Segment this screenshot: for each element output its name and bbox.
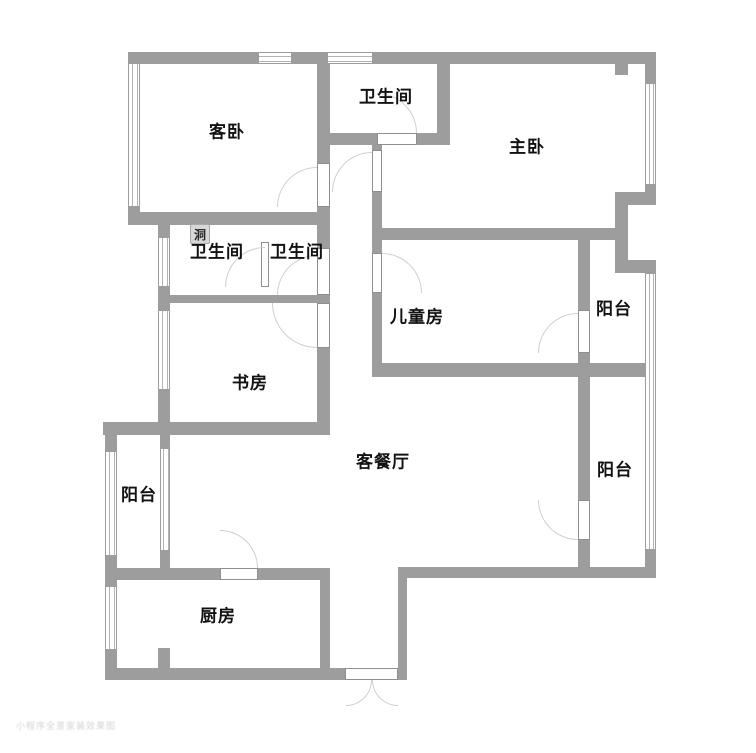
window [105, 451, 117, 556]
room-label-master-bedroom: 主卧 [509, 133, 545, 158]
door-leaf [377, 133, 417, 145]
wall [158, 287, 170, 310]
room-label-balcony-right-lower: 阳台 [597, 456, 633, 481]
door-swing-arc [272, 303, 317, 348]
wall [645, 64, 656, 83]
door-leaf [317, 303, 330, 348]
door-swing-arc [382, 253, 422, 293]
wall [158, 648, 170, 668]
room-label-living-dining: 客餐厅 [356, 448, 410, 473]
hole-annotation: 洞 [190, 224, 210, 244]
watermark: 小程序全景家装效果图 [16, 719, 116, 732]
door-swing-arc [220, 530, 258, 568]
window [105, 586, 117, 650]
wall [398, 567, 407, 680]
room-label-balcony-left: 阳台 [121, 481, 157, 506]
wall [317, 64, 330, 163]
wall [578, 240, 590, 310]
door-swing-arc [538, 500, 578, 540]
wall [320, 568, 330, 668]
wall [128, 52, 656, 64]
wall [372, 228, 628, 240]
room-label-bathroom-right: 卫生间 [270, 238, 324, 263]
window [645, 273, 656, 550]
wall [160, 435, 170, 448]
door-swing-arc [372, 680, 398, 706]
wall [158, 212, 170, 237]
door-leaf [220, 568, 258, 580]
window [645, 83, 656, 185]
door-leaf [317, 163, 330, 207]
wall [317, 348, 330, 422]
wall [105, 668, 345, 680]
wall [103, 422, 330, 435]
room-label-guest-bedroom: 客卧 [209, 118, 245, 143]
wall [417, 133, 450, 145]
window [258, 52, 292, 64]
door-swing-arc [277, 167, 317, 207]
window [160, 448, 170, 551]
entry-door-sill [345, 668, 398, 680]
wall [158, 390, 170, 435]
room-label-children-room: 儿童房 [390, 303, 444, 328]
wall [615, 260, 656, 273]
wall [105, 568, 220, 580]
wall [105, 422, 117, 451]
room-label-kitchen: 厨房 [200, 602, 236, 627]
wall [158, 295, 330, 303]
wall [372, 363, 656, 377]
door-leaf [578, 500, 590, 540]
door-swing-arc [538, 313, 578, 353]
wall [645, 185, 656, 205]
door-swing-arc [346, 680, 372, 706]
floor-plan: 客卧 卫生间 主卧 卫生间 卫生间 儿童房 阳台 书房 客餐厅 阳台 阳台 厨房… [0, 0, 756, 753]
window [327, 52, 373, 64]
door-leaf [372, 150, 382, 192]
door-swing-arc [332, 152, 372, 192]
room-label-bathroom-top: 卫生间 [359, 83, 413, 108]
window [128, 63, 140, 207]
wall [317, 133, 377, 145]
wall [398, 567, 656, 578]
window [158, 237, 170, 287]
wall [372, 192, 382, 253]
room-label-balcony-right-upper: 阳台 [596, 295, 632, 320]
door-leaf [372, 253, 382, 293]
room-label-study: 书房 [232, 369, 268, 394]
wall [615, 64, 628, 75]
window [158, 310, 170, 390]
door-leaf [578, 310, 590, 353]
